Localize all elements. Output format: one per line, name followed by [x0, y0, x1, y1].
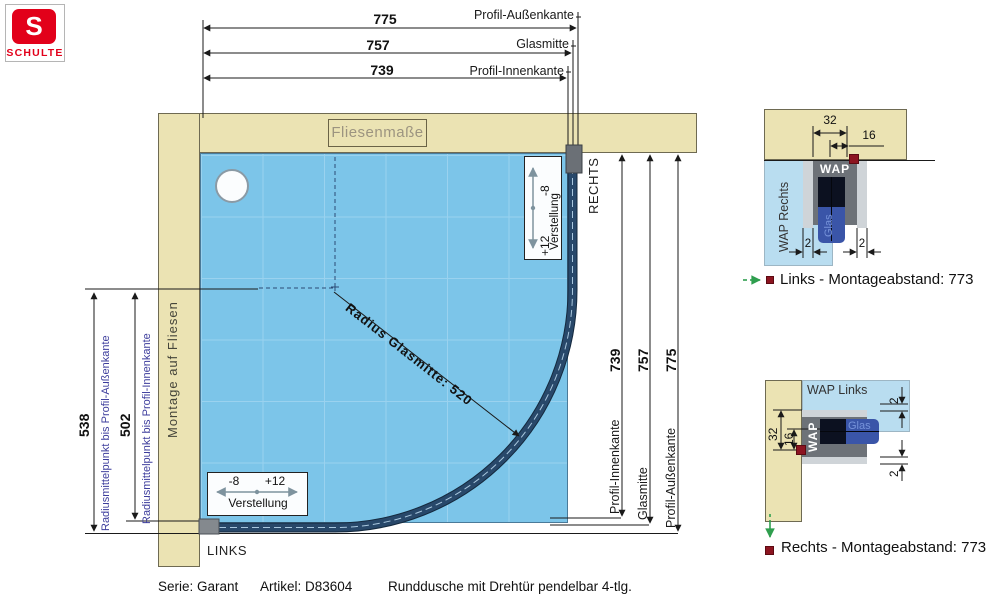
- right-dim-739: 739: [607, 349, 623, 372]
- detail-bottom-glas-label: Glas: [848, 420, 871, 432]
- detail-top-dim-2-right: 2: [851, 238, 873, 250]
- right-label-profil-aussenkante: Profil-Außenkante: [664, 428, 678, 528]
- detail-top-caption: Links - Montageabstand: 773: [780, 271, 973, 288]
- right-label-glasmitte: Glasmitte: [636, 467, 650, 520]
- footer-artikel: Artikel: D83604: [260, 579, 352, 594]
- technical-drawing-page: S SCHULTE Fliesenmaße Profil-Außenkante …: [0, 0, 1000, 600]
- detail-top-mount-marker: [849, 154, 859, 164]
- right-label-profil-innenkante: Profil-Innenkante: [608, 419, 622, 514]
- detail-top-profile-edge-left: [803, 160, 813, 228]
- corner-label-rechts: RECHTS: [586, 158, 601, 214]
- detail-bottom-profile-edge-bottom: [802, 457, 867, 464]
- corner-label-links: LINKS: [207, 543, 247, 558]
- logo-s-letter: S: [25, 11, 42, 41]
- left-label-radius-aussenkante: Radiusmittelpunkt bis Profil-Außenkante: [100, 335, 112, 531]
- top-dim-775: 775: [355, 11, 415, 27]
- logo-s-mark: S: [12, 9, 56, 44]
- detail-top-dim-2-left: 2: [797, 238, 819, 250]
- detail-top-caption-marker: [766, 276, 774, 284]
- detail-bottom-dim-32: 32: [766, 428, 780, 441]
- wall-top: [158, 113, 697, 153]
- detail-bottom-dim-2-top: 2: [889, 398, 901, 404]
- detail-top-dim-32: 32: [816, 113, 844, 127]
- top-dim-739: 739: [352, 62, 412, 78]
- top-dim-757: 757: [348, 37, 408, 53]
- drain-circle: [215, 169, 249, 203]
- detail-bottom-dim-16: 16: [782, 433, 796, 446]
- detail-bottom-area-label: WAP Links: [807, 383, 867, 397]
- detail-bottom-wap-label: WAP: [806, 422, 820, 452]
- detail-top-glas-label: Glas: [823, 214, 835, 237]
- adjustment-bottom-minus: -8: [222, 474, 246, 488]
- detail-top-area-label: WAP Rechts: [777, 182, 791, 252]
- footer-description: Runddusche mit Drehtür pendelbar 4-tlg.: [388, 579, 632, 594]
- left-label-radius-innenkante: Radiusmittelpunkt bis Profil-Innenkante: [141, 333, 153, 524]
- logo-brand: SCHULTE: [6, 47, 64, 59]
- right-dim-757: 757: [635, 349, 651, 372]
- detail-bottom-caption-marker: [765, 546, 774, 555]
- adjustment-bottom-plus: +12: [260, 474, 290, 488]
- detail-bottom-profile-edge-top: [802, 410, 867, 417]
- logo-box: S SCHULTE: [5, 4, 65, 62]
- detail-bottom-mount-marker: [796, 445, 806, 455]
- top-label-profil-aussenkante: Profil-Außenkante: [440, 8, 574, 22]
- top-label-glasmitte: Glasmitte: [440, 37, 569, 51]
- detail-bottom-caption: Rechts - Montageabstand: 773: [781, 539, 986, 556]
- tile-dimensions-label: Fliesenmaße: [328, 119, 427, 147]
- detail-top-dim-16: 16: [856, 128, 882, 142]
- adjustment-right-label: Verstellung: [549, 193, 561, 250]
- detail-bottom-dim-2-bottom: 2: [889, 471, 901, 477]
- adjustment-bottom-label: Verstellung: [212, 496, 304, 510]
- top-label-profil-innenkante: Profil-Innenkante: [436, 64, 564, 78]
- right-dim-775: 775: [663, 349, 679, 372]
- detail-top-wap-label: WAP: [813, 162, 857, 176]
- wall-mount-label: Montage auf Fliesen: [165, 301, 180, 438]
- left-dim-502: 502: [117, 414, 133, 437]
- detail-top-profile-edge-right: [857, 160, 867, 228]
- footer-serie: Serie: Garant: [158, 579, 238, 594]
- left-dim-538: 538: [76, 414, 92, 437]
